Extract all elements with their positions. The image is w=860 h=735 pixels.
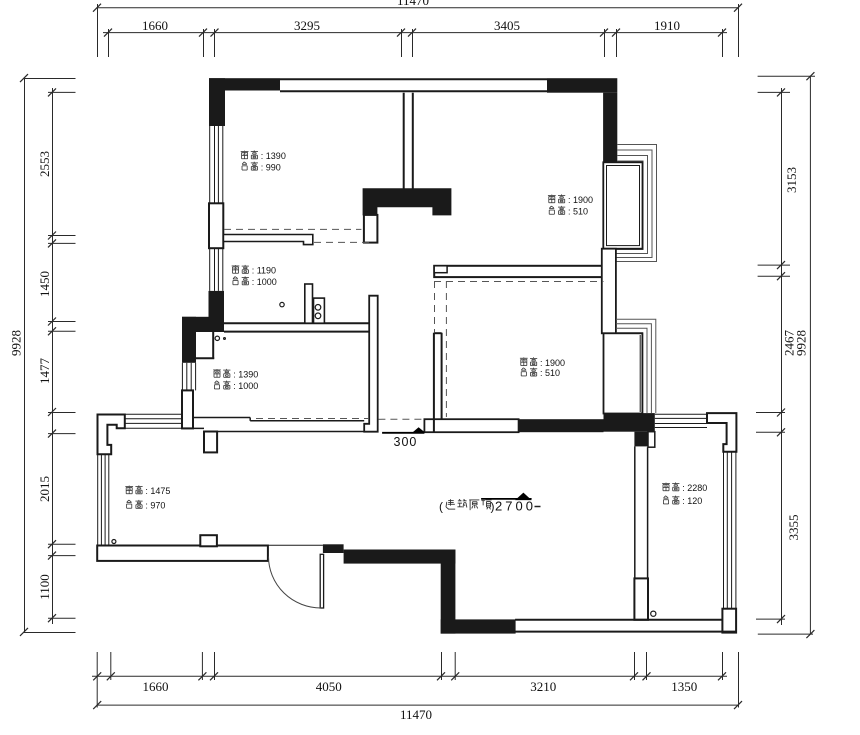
svg-text:: 970: : 970 (145, 501, 165, 511)
svg-text:3153: 3153 (784, 167, 799, 193)
svg-text:: 510: : 510 (540, 368, 560, 378)
svg-text:2015: 2015 (37, 476, 52, 502)
svg-text:9928: 9928 (794, 330, 809, 356)
svg-text:: 1390: : 1390 (233, 370, 258, 380)
svg-text:: 1190: : 1190 (252, 266, 276, 276)
svg-text:: 1390: : 1390 (261, 151, 286, 161)
svg-text:1477: 1477 (37, 358, 52, 385)
svg-text:1660: 1660 (142, 18, 168, 33)
svg-text:: 1475: : 1475 (145, 486, 170, 496)
svg-text:: 1000: : 1000 (233, 381, 258, 391)
svg-text:: 1900: : 1900 (568, 195, 593, 205)
svg-text:: 990: : 990 (261, 162, 281, 172)
svg-text:1450: 1450 (37, 271, 52, 297)
svg-text:3355: 3355 (786, 515, 801, 541)
svg-text:: 510: : 510 (568, 207, 588, 217)
svg-text:2700: 2700 (495, 499, 536, 514)
svg-text:11470: 11470 (397, 0, 429, 8)
svg-text:(: ( (439, 500, 443, 514)
svg-text:: 2280: : 2280 (682, 483, 707, 493)
svg-text:3405: 3405 (494, 18, 520, 33)
svg-text:: 120: : 120 (682, 496, 702, 506)
svg-text:2553: 2553 (37, 151, 52, 177)
svg-text:: 1000: : 1000 (252, 277, 277, 287)
svg-text:: 1900: : 1900 (540, 358, 565, 368)
svg-text:9928: 9928 (9, 330, 24, 356)
svg-text:1350: 1350 (671, 679, 697, 694)
svg-text:3295: 3295 (294, 18, 320, 33)
svg-text:4050: 4050 (316, 679, 342, 694)
svg-text:1910: 1910 (654, 18, 680, 33)
svg-text:3210: 3210 (530, 679, 556, 694)
svg-text:): ) (491, 500, 495, 514)
svg-text:11470: 11470 (400, 707, 432, 722)
svg-text:300: 300 (394, 435, 418, 449)
svg-text:1660: 1660 (143, 679, 169, 694)
svg-text:1100: 1100 (37, 574, 52, 600)
